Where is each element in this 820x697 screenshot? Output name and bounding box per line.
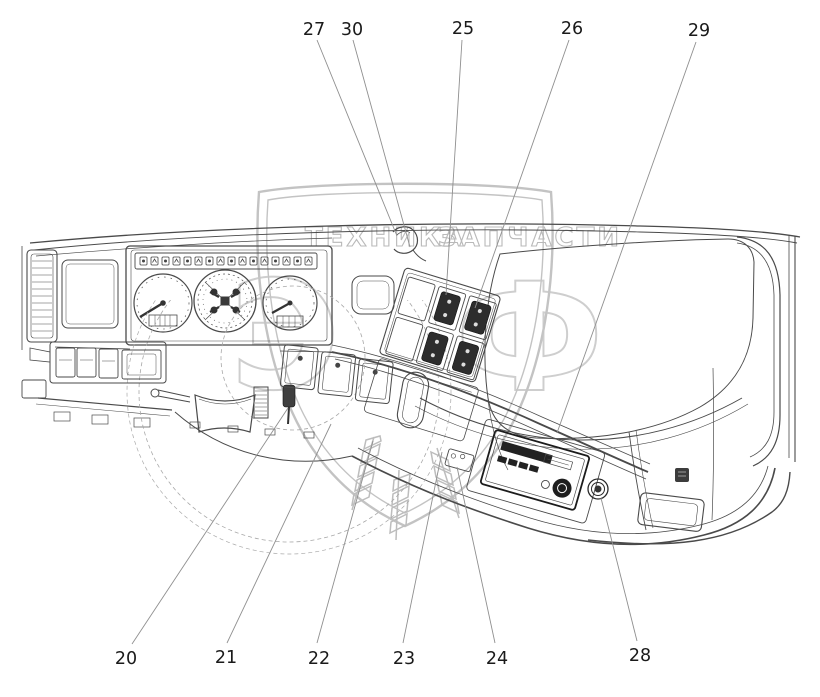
watermark-wheat-left: [352, 436, 381, 510]
right-end-panel: [737, 235, 795, 466]
radio-knob: [550, 476, 574, 500]
callout-labels: 20 21 22 23 24 25 26 27 28 29 30: [115, 19, 710, 669]
callout-label-22: 22: [308, 649, 330, 669]
callout-label-21: 21: [215, 648, 237, 668]
cigarette-lighter: [588, 479, 608, 499]
callout-leader-lines: [132, 40, 696, 644]
center-oval-vent: [395, 370, 430, 430]
leader-line-27: [317, 40, 397, 236]
diagram-page: Э Ф ТЕХНИКА ЗАПЧАСТИ: [0, 0, 820, 697]
radio-unit: [466, 419, 606, 524]
dash-body: [22, 224, 800, 545]
callout-label-24: 24: [486, 649, 508, 669]
leader-line-20: [132, 408, 288, 644]
dash-vent: [352, 276, 394, 314]
callout-label-29: 29: [688, 21, 710, 41]
column-stalk-knob: [151, 389, 159, 397]
leader-line-21: [227, 424, 331, 643]
callout-label-27: 27: [303, 20, 325, 40]
callout-label-20: 20: [115, 649, 137, 669]
leader-line-24: [457, 467, 495, 643]
left-blank-panel: [62, 260, 118, 328]
callout-label-26: 26: [561, 19, 583, 39]
watermark-wheat-right: [431, 448, 459, 518]
callout-label-25: 25: [452, 19, 474, 39]
callout-label-30: 30: [341, 20, 363, 40]
speedometer-gauge: [134, 274, 192, 332]
callout-label-28: 28: [629, 646, 651, 666]
left-louver-vent: [22, 246, 57, 398]
watermark-monogram-right: Ф: [455, 252, 604, 426]
leader-line-28: [601, 498, 637, 641]
leader-line-30: [353, 40, 410, 247]
dashboard-diagram: Э Ф ТЕХНИКА ЗАПЧАСТИ: [0, 0, 820, 697]
callout-label-23: 23: [393, 649, 415, 669]
watermark-word-right: ЗАПЧАСТИ: [438, 223, 622, 253]
combination-gauge: [194, 270, 256, 332]
right-small-switch: [675, 468, 689, 482]
